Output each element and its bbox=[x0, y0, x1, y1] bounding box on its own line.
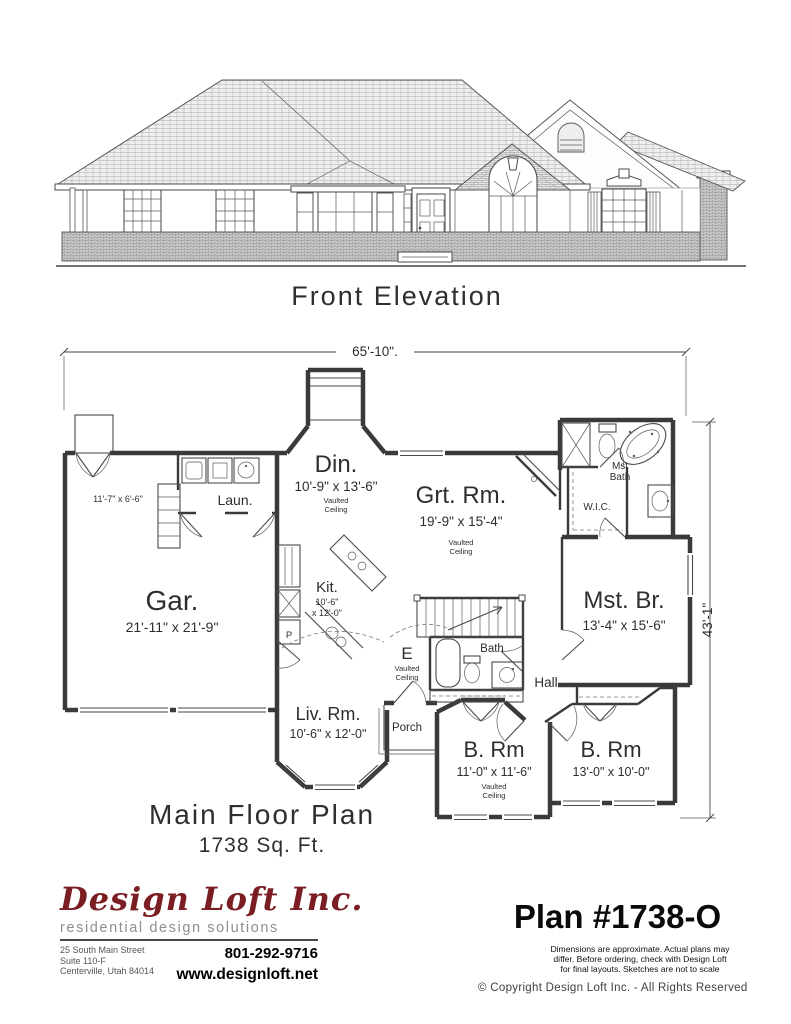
bedroom2-note1: Vaulted bbox=[482, 782, 507, 791]
architectural-drawing: Front Elevation bbox=[0, 0, 791, 878]
pantry-label: P bbox=[286, 630, 292, 641]
entry-note1: Vaulted bbox=[395, 664, 420, 673]
entry-note2: Ceiling bbox=[396, 673, 419, 682]
front-elevation-title: Front Elevation bbox=[291, 281, 503, 311]
disclaimer-text: Dimensions are approximate. Actual plans… bbox=[536, 944, 744, 974]
front-elevation-drawing bbox=[55, 80, 746, 266]
dim-height-label: 43'-1" bbox=[700, 603, 715, 638]
living-room-dims: 10'-6" x 12'-0" bbox=[290, 727, 367, 741]
address-line2: Suite 110-F bbox=[60, 956, 154, 967]
wic-label: W.I.C. bbox=[583, 502, 610, 513]
floor-plan-area: 1738 Sq. Ft. bbox=[199, 834, 325, 857]
dim-width-label: 65'-10". bbox=[352, 344, 398, 359]
great-room-note2: Ceiling bbox=[450, 547, 473, 556]
disclaimer-line2: differ. Before ordering, check with Desi… bbox=[536, 954, 744, 964]
plan-number: Plan #1738-O bbox=[495, 898, 740, 936]
hall-label: Hall bbox=[534, 675, 557, 690]
bedroom3-dims: 13'-0" x 10'-0" bbox=[573, 765, 650, 779]
fireplace bbox=[516, 454, 559, 496]
master-bath-line1: Mst bbox=[612, 461, 628, 472]
blueprint-page: Front Elevation bbox=[0, 0, 791, 1024]
elevation-window-left1 bbox=[124, 190, 161, 232]
dining-note1: Vaulted bbox=[324, 496, 349, 505]
great-room-dims: 19'-9" x 15'-4" bbox=[419, 514, 502, 529]
company-logo-block: Design Loft Inc. residential design solu… bbox=[60, 880, 318, 984]
copyright-text: © Copyright Design Loft Inc. - All Right… bbox=[478, 982, 742, 994]
kitchen-dims2: x 12'-0" bbox=[312, 608, 342, 618]
company-website[interactable]: www.designloft.net bbox=[176, 966, 318, 984]
bedroom3-label: B. Rm bbox=[580, 737, 641, 762]
storage-dims: 11'-7" x 6'-6" bbox=[93, 494, 143, 504]
bedroom2-note2: Ceiling bbox=[483, 791, 506, 800]
laundry-label: Laun. bbox=[217, 492, 252, 508]
floor-plan-drawing: 65'-10". 43'-1" Gar. 21'-11" x 21'-9" 11… bbox=[60, 342, 716, 822]
bedroom2-dims: 11'-0" x 11'-6" bbox=[456, 765, 531, 779]
floor-plan-title: Main Floor Plan bbox=[149, 799, 375, 830]
dining-dims: 10'-9" x 13'-6" bbox=[294, 479, 377, 494]
address-line1: 25 South Main Street bbox=[60, 945, 154, 956]
garage-dims: 21'-11" x 21'-9" bbox=[126, 619, 219, 635]
kitchen-label: Kit. bbox=[316, 579, 338, 596]
disclaimer-line3: for final layouts. Sketches are not to s… bbox=[536, 964, 744, 974]
garage-label: Gar. bbox=[146, 585, 199, 616]
title-block-footer: Design Loft Inc. residential design solu… bbox=[0, 878, 791, 1024]
master-bedroom-dims: 13'-4" x 15'-6" bbox=[582, 618, 665, 633]
bedroom2-label: B. Rm bbox=[463, 737, 524, 762]
company-logo: Design Loft Inc. bbox=[60, 880, 318, 918]
great-room-note1: Vaulted bbox=[449, 538, 474, 547]
kitchen-dims1: 10'-6" bbox=[316, 597, 339, 607]
bath-label: Bath bbox=[480, 643, 504, 655]
address-line3: Centerville, Utah 84014 bbox=[60, 966, 154, 977]
dining-label: Din. bbox=[315, 451, 358, 478]
dining-note2: Ceiling bbox=[325, 505, 348, 514]
disclaimer-line1: Dimensions are approximate. Actual plans… bbox=[536, 944, 744, 954]
great-room-label: Grt. Rm. bbox=[416, 482, 507, 509]
porch-label: Porch bbox=[392, 722, 422, 734]
company-address: 25 South Main Street Suite 110-F Centerv… bbox=[60, 945, 154, 984]
stairs bbox=[414, 595, 525, 637]
master-bath-line2: Bath bbox=[610, 472, 631, 483]
living-room-label: Liv. Rm. bbox=[296, 704, 361, 724]
entry-label: E bbox=[401, 644, 412, 663]
elevation-window-left2 bbox=[216, 190, 254, 232]
company-tagline: residential design solutions bbox=[60, 920, 318, 941]
company-phone: 801-292-9716 bbox=[176, 945, 318, 962]
master-bedroom-label: Mst. Br. bbox=[583, 587, 664, 614]
elevation-bay-window bbox=[291, 186, 405, 233]
